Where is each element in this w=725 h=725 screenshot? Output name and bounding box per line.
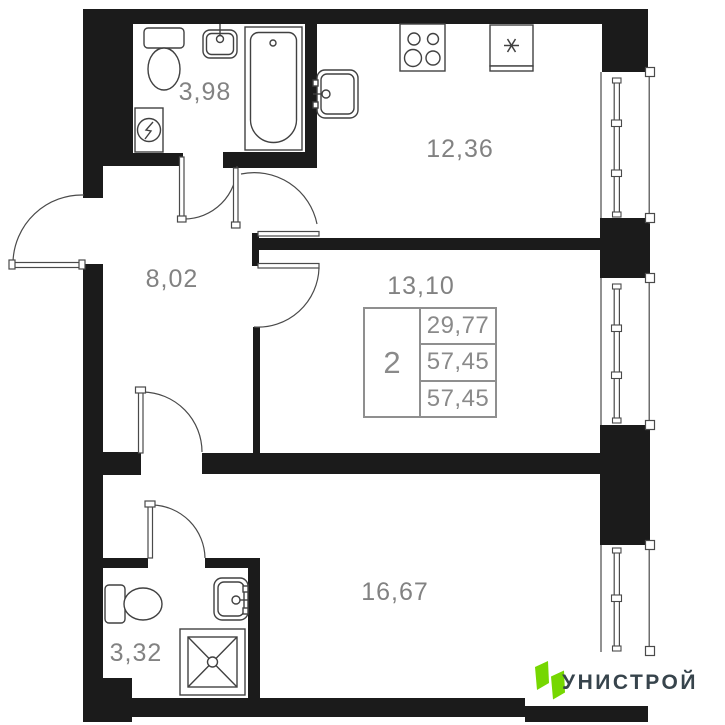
rail-caps [646,68,655,656]
entrance-door [9,195,85,269]
door-arc-icon [184,166,237,219]
fridge-snowflake-icon [490,25,533,71]
living-area-cell: 29,77 [421,309,495,343]
room-label-living: 13,10 [361,272,481,301]
shower-icon [180,629,245,695]
wall-kitchen-living [258,238,602,250]
unistroy-logo-text: УНИСТРОЙ [562,671,698,695]
door-arc-icon [153,505,206,558]
wc-door [145,501,205,558]
kitchen-sink-icon [313,70,358,118]
room-label-hallway: 8,02 [117,265,227,294]
wall-wc-top-left [103,558,148,568]
window-glazing-kitchen [614,78,619,217]
door-arc-icon [13,195,84,262]
wall-bottom-right [525,706,648,722]
full-area-cell: 57,45 [421,380,495,416]
bathtub-icon [245,27,302,150]
electric-panel-icon [135,108,163,152]
wall-corner-top-right [602,9,648,72]
room-label-kitchen: 12,36 [400,135,520,164]
door-arc-icon [241,173,317,224]
wall-wc-right [248,558,260,698]
wall-bathroom-bottom-right [223,152,317,168]
door-arc-icon [254,268,319,327]
door-arc-icon [143,392,202,452]
toilet-bottom-icon [105,585,162,623]
wall-right-lower-block [600,425,650,545]
rooms-count-cell: 2 [365,309,421,416]
wall-living-bedroom [202,453,602,474]
wc-sink-icon [214,578,248,620]
wall-left-upper [83,9,103,198]
room-label-bathroom-top: 3,98 [160,78,250,107]
windows [601,67,649,655]
wall-stub-hall [252,233,259,266]
wall-right-mid-block [600,218,650,278]
bedroom-door [136,387,203,453]
total-area-cell: 57,45 [421,343,495,379]
room-label-bathroom-bottom: 3,32 [86,639,186,668]
room-label-bedroom: 16,67 [335,578,455,607]
wall-bathroom-bottom-left [103,153,183,166]
sink-icon [203,24,237,58]
unistroy-logo: УНИСТРОЙ [530,655,720,705]
wall-bottom [85,698,525,717]
living-door [254,264,319,328]
window-glazing-living [614,284,619,423]
stove-icon [400,24,445,71]
wall-top [83,9,648,24]
apartment-info-table: 2 29,77 57,45 57,45 [363,307,497,418]
floor-plan: 3,98 12,36 8,02 13,10 16,67 3,32 2 29,77… [0,0,725,725]
wall-hall-living [253,327,260,453]
kitchen-door [232,168,320,236]
wall-hall-bedroom-left [103,452,141,475]
doors [9,157,319,558]
wall-bathroom-kitchen [305,24,317,153]
